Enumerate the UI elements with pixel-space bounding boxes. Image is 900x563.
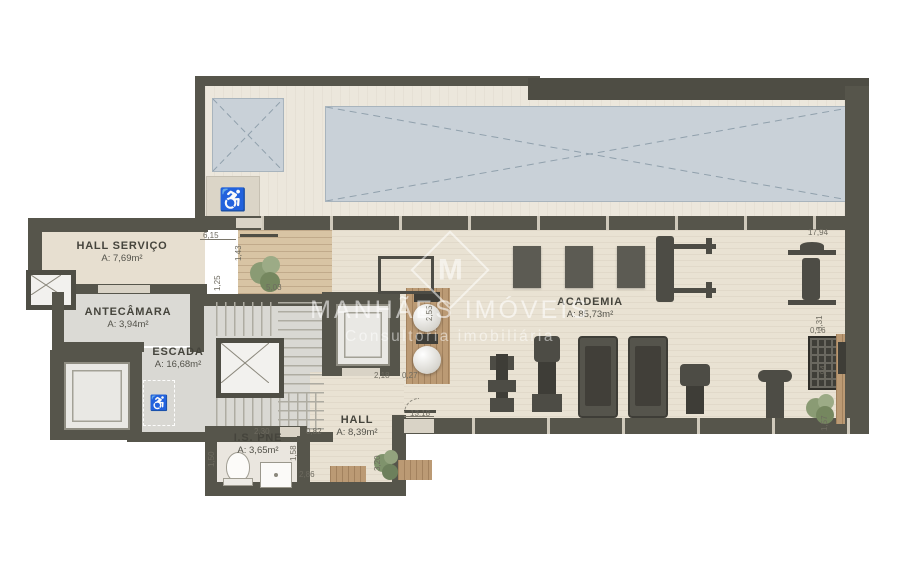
shoulder-press-symbol — [532, 394, 562, 412]
weight-plate-symbol — [706, 282, 712, 298]
wall-right — [845, 86, 869, 434]
bench-symbol — [398, 460, 432, 480]
leg-press-symbol — [686, 386, 704, 414]
weight-machine-symbol — [488, 380, 516, 392]
door-leaf-terrace — [240, 234, 278, 237]
dimension-label: 17,94 — [808, 228, 828, 237]
skylight-large — [325, 106, 855, 202]
dimension-label: 1,58 — [289, 445, 298, 461]
dimension-label: 2,30 — [254, 427, 270, 436]
squat-stand-symbol — [758, 370, 792, 382]
door-gap-academia — [404, 419, 434, 433]
barbell-symbol — [788, 300, 836, 305]
room-area: A: 3,65m² — [234, 445, 283, 456]
stair-void-cross — [221, 343, 269, 383]
skylight-small — [212, 98, 284, 172]
treadmill-symbol — [578, 336, 618, 418]
shelf-board — [416, 334, 438, 344]
wall-terrace-top-thick — [528, 78, 869, 100]
sink-symbol — [260, 462, 292, 488]
room-label-hall: HALL A: 8,39m² — [336, 414, 377, 438]
wall-terrace-bottom — [195, 216, 869, 230]
wheelchair-icon: ♿ — [219, 187, 246, 213]
room-area: A: 7,69m² — [76, 253, 167, 264]
floor-plan: ♿ ♿ — [0, 0, 900, 563]
room-name: ANTECÂMARA — [85, 306, 172, 318]
weight-plate-symbol — [800, 242, 824, 250]
shoulder-press-symbol — [538, 362, 556, 396]
door-gap-terrace — [236, 218, 262, 228]
dimension-label: 13,18 — [410, 409, 430, 418]
wall-academia-bottom — [400, 418, 869, 434]
squat-stand-symbol — [766, 382, 784, 418]
room-name: HALL — [336, 414, 377, 426]
stair-treads-top — [216, 302, 274, 336]
dimension-label: 2,86 — [299, 470, 315, 479]
dimension-label: 2,18 — [374, 371, 390, 380]
exercise-mat-symbol — [617, 246, 645, 288]
dimension-label: 1,94 — [819, 365, 828, 381]
weight-plate-symbol — [706, 238, 712, 254]
elevator-1-cab — [64, 362, 130, 430]
room-label-hall-servico: HALL SERVIÇO A: 7,69m² — [76, 240, 167, 264]
toilet-tank-symbol — [223, 478, 253, 486]
dimension-label: 0,27 — [402, 371, 418, 380]
dimension-label: 1,50 — [207, 451, 216, 467]
wheelchair-icon: ♿ — [150, 394, 169, 412]
door-recess — [838, 342, 846, 374]
room-name: HALL SERVIÇO — [76, 240, 167, 252]
elevator-2-cab — [336, 304, 390, 366]
weight-machine-symbol — [490, 398, 514, 412]
room-area: A: 3,94m² — [85, 319, 172, 330]
door-gap-antecamara — [98, 285, 150, 293]
dimension-label: 2,55 — [425, 305, 434, 321]
bench-press-bench-symbol — [656, 236, 674, 302]
incline-bench-symbol — [802, 258, 820, 300]
shoulder-press-symbol — [534, 336, 560, 362]
leg-press-symbol — [680, 364, 710, 386]
wall-terrace-top — [195, 76, 540, 86]
room-label-escada: ESCADA A: 16,68m² — [152, 346, 203, 370]
room-label-antecamara: ANTECÂMARA A: 3,94m² — [85, 306, 172, 330]
decor-sphere — [413, 346, 441, 374]
skylight-large-cross — [326, 107, 854, 201]
watermark-logo-letter: M — [438, 253, 463, 287]
wall-hall-servico-top — [28, 218, 208, 232]
dimension-label: 0,82 — [306, 427, 322, 436]
room-name: ACADEMIA — [557, 296, 623, 308]
dimension-label: 5,03 — [266, 283, 282, 292]
room-area: A: 16,68m² — [152, 359, 203, 370]
dimension-label: 3,20 — [373, 455, 382, 471]
wall-terrace-left — [195, 76, 205, 228]
escada-accessible-area: ♿ — [143, 380, 175, 426]
wall-hall-servico-left — [28, 218, 42, 276]
exercise-mat-symbol — [565, 246, 593, 288]
dimension-label: 1,57 — [820, 415, 829, 431]
room-name: ESCADA — [152, 346, 203, 358]
exercise-mat-symbol — [513, 246, 541, 288]
room-area: A: 85,73m² — [557, 309, 623, 320]
room-area: A: 8,39m² — [336, 427, 377, 438]
room-label-academia: ACADEMIA A: 85,73m² — [557, 296, 623, 320]
dimension-label: 1,43 — [234, 245, 243, 261]
treadmill-symbol — [628, 336, 668, 418]
skylight-small-cross — [213, 99, 283, 171]
barbell-symbol — [788, 250, 836, 255]
dimension-label: 6,15 — [203, 231, 219, 240]
stair-void — [216, 338, 284, 398]
dimension-label: 0,16 — [810, 326, 826, 335]
bench-symbol — [330, 466, 366, 482]
duct-shaft — [26, 270, 76, 310]
dimension-label: 1,25 — [213, 275, 222, 291]
